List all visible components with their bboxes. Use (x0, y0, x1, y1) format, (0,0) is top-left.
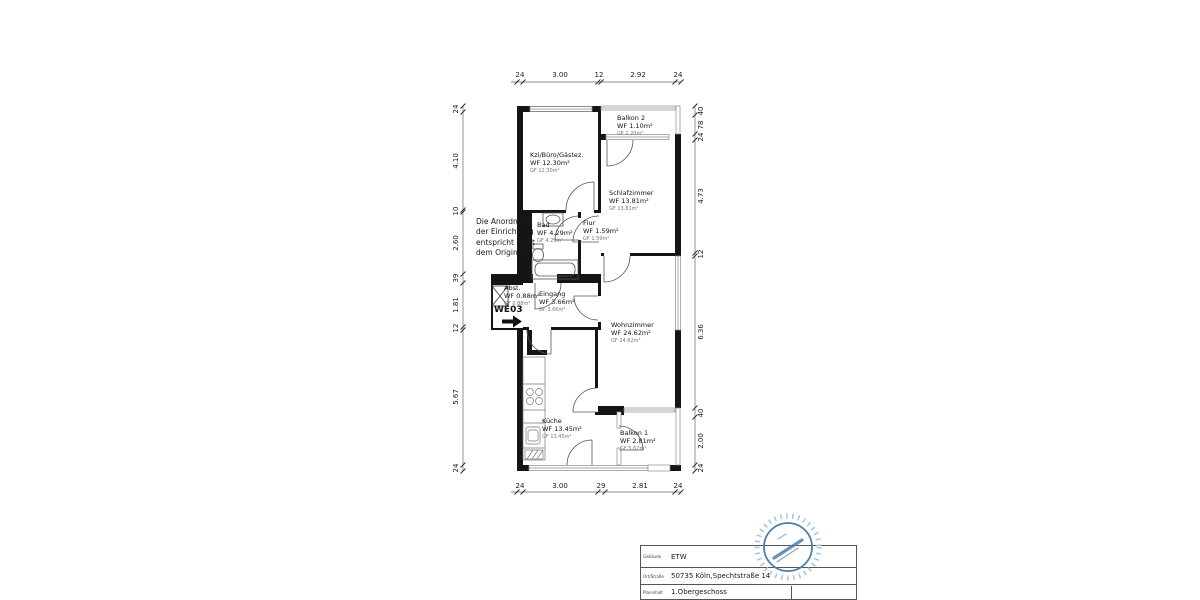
room-label-wohnzimmer: Wohnzimmer WF 24.62m² GF 24.62m² (611, 322, 654, 344)
room-gf: GF 2.20m² (617, 131, 653, 137)
titleblock-field-label: Planinhalt (641, 590, 668, 595)
dimension-label: 10 (452, 207, 460, 216)
room-wf: WF 13.81m² (609, 198, 653, 206)
titleblock-field-value: ETW (668, 553, 687, 561)
room-gf: GF 3.66m² (539, 307, 575, 313)
kitchen-fixtures (523, 357, 545, 460)
dimension-label: 2.60 (452, 235, 460, 251)
room-label-kzi: Kzi/Büro/Gästez. WF 12.30m² GF 12.30m² (530, 152, 583, 174)
floor-plan-drawing (0, 0, 1200, 600)
room-wf: WF 12.30m² (530, 160, 583, 168)
approval-stamp-icon (748, 507, 828, 587)
titleblock-row-planinhalt: Planinhalt 1.Obergeschoss (641, 585, 856, 600)
room-wf: WF 2.81m² (620, 438, 656, 446)
dimension-label: 5.67 (452, 389, 460, 405)
room-gf: GF 13.81m² (609, 206, 653, 212)
dimension-label: 4.73 (697, 188, 705, 204)
titleblock-field-value: 1.Obergeschoss (668, 588, 727, 596)
room-gf: GF 13.45m² (542, 434, 582, 440)
room-wf: WF 1.59m² (583, 228, 619, 236)
dimension-label: 2.92 (630, 71, 646, 79)
room-label-bad: Bad WF 4.29m² GF 4.29m² (537, 222, 573, 244)
room-wf: WF 1.10m² (617, 123, 653, 131)
room-label-flur: Flur WF 1.59m² GF 1.59m² (583, 220, 619, 242)
dimension-label: 78 (697, 121, 705, 130)
dimension-label: 12 (595, 71, 604, 79)
room-label-balkon1: Balkon 1 WF 2.81m² GF 5.62m² (620, 430, 656, 452)
floor-plan-page: 24 3.00 12 2.92 24 24 3.00 29 2.81 24 24… (0, 0, 1200, 600)
dimension-label: 4.10 (452, 153, 460, 169)
room-wf: WF 4.29m² (537, 230, 573, 238)
kitchen-counter (523, 357, 545, 460)
dimension-label: 2.81 (632, 482, 648, 490)
titleblock-field-label: Ort/Straße (641, 574, 668, 579)
room-gf: GF 1.59m² (583, 236, 619, 242)
room-gf: GF 24.62m² (611, 338, 654, 344)
room-label-balkon2: Balkon 2 WF 1.10m² GF 2.20m² (617, 115, 653, 137)
note-line: entspricht nicht (476, 238, 535, 248)
dimension-label: 3.00 (552, 482, 568, 490)
note-line: dem Original (476, 248, 535, 258)
dimension-label: 1.81 (452, 297, 460, 313)
dimension-label: 24 (452, 464, 460, 473)
room-gf: GF 4.29m² (537, 238, 573, 244)
room-wf: WF 13.45m² (542, 426, 582, 434)
dimension-label: 12 (452, 324, 460, 333)
note-line: der Einrichtung (476, 227, 535, 237)
unit-label: WE03 (494, 305, 523, 315)
dimension-label: 24 (516, 71, 525, 79)
room-label-kueche: Küche WF 13.45m² GF 13.45m² (542, 418, 582, 440)
plan-note: Die Anordnung der Einrichtung entspricht… (476, 217, 535, 258)
dimension-label: 24 (697, 464, 705, 473)
dimension-label: 39 (452, 274, 460, 283)
room-wf: WF 24.62m² (611, 330, 654, 338)
dimension-label: 24 (516, 482, 525, 490)
dimension-label: 40 (697, 409, 705, 418)
room-wf: WF 0.88m² (504, 293, 540, 301)
dimension-label: 3.00 (552, 71, 568, 79)
room-label-eingang: Eingang WF 3.66m² GF 3.66m² (539, 291, 575, 313)
dimension-label: 24 (674, 71, 683, 79)
dimension-label: 29 (597, 482, 606, 490)
dimension-label: 2.00 (697, 433, 705, 449)
dimension-label: 40 (697, 107, 705, 116)
room-gf: GF 12.30m² (530, 168, 583, 174)
titleblock-field-label: Gebäude (641, 554, 668, 559)
room-gf: GF 5.62m² (620, 446, 656, 452)
titleblock-divider (791, 586, 792, 600)
dimension-label: 6.36 (697, 324, 705, 340)
room-label-abst: Abst. WF 0.88m² GF 0.88m² (504, 285, 540, 307)
dimension-label: 24 (452, 105, 460, 114)
dimension-label: 24 (674, 482, 683, 490)
note-line: Die Anordnung (476, 217, 535, 227)
room-label-schlafzimmer: Schlafzimmer WF 13.81m² GF 13.81m² (609, 190, 653, 212)
dimension-label: 24 (697, 133, 705, 142)
dimension-label: 12 (697, 250, 705, 259)
room-wf: WF 3.66m² (539, 299, 575, 307)
